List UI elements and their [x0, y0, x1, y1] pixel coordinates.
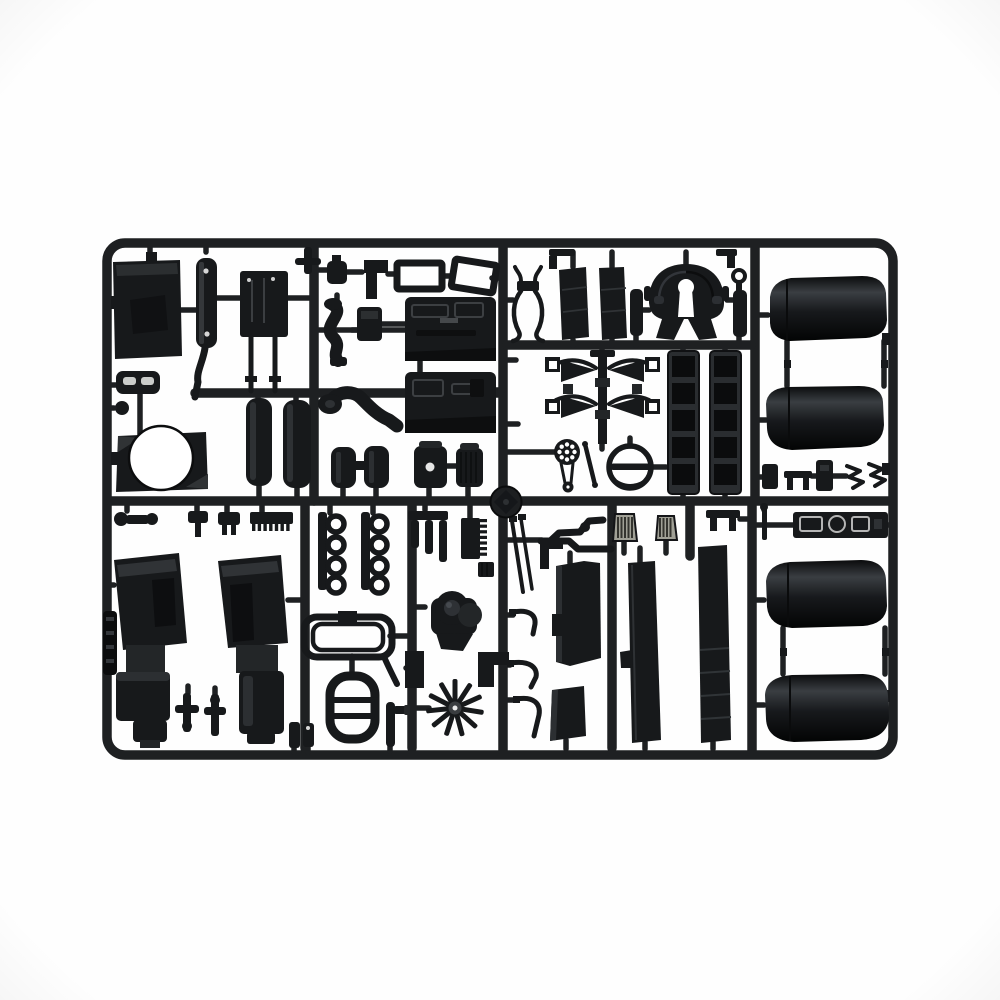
sprue-scene: [0, 0, 1000, 1000]
sprue-photo-svg: [0, 0, 1000, 1000]
photo-canvas: [0, 0, 1000, 1000]
photo-vignette: [0, 0, 1000, 1000]
